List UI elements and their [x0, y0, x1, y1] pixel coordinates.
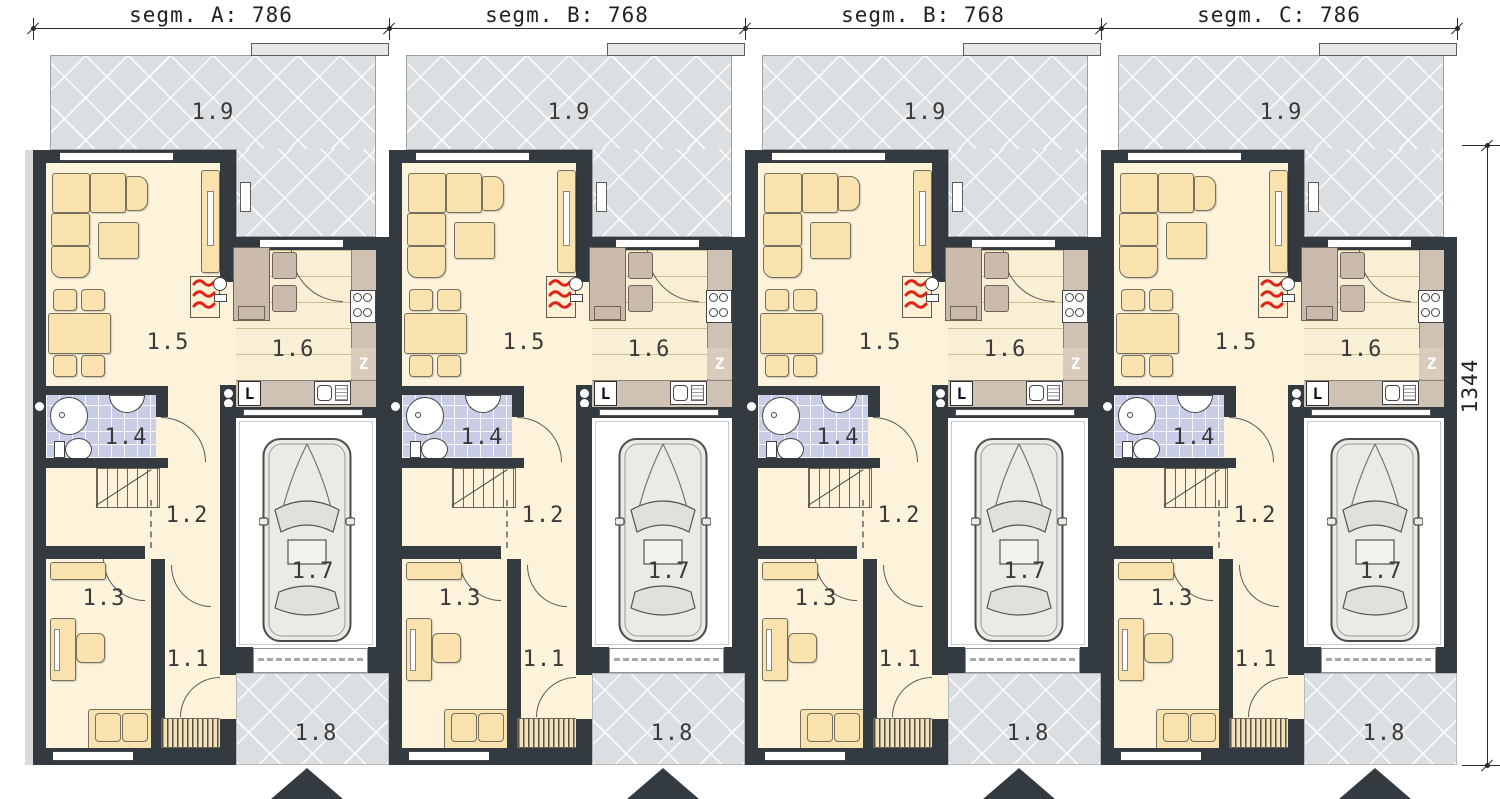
- office-label: 1.3: [789, 587, 843, 611]
- kitchen-chair: [984, 285, 1009, 312]
- shower: [762, 397, 800, 435]
- desk-chair: [432, 633, 461, 663]
- outer-wall-shadow: [25, 150, 33, 765]
- driveway: [236, 673, 389, 765]
- driveway-label: 1.8: [1001, 722, 1055, 746]
- burner-icon: [1421, 293, 1430, 302]
- right-dimension-label: 1344: [1458, 356, 1482, 416]
- burner-icon: [363, 293, 372, 302]
- garage-window: [1311, 409, 1431, 416]
- dining-chair: [793, 355, 817, 377]
- kitchen-chair: [1340, 285, 1365, 312]
- garage-label: 1.7: [642, 560, 696, 584]
- office-shelf: [762, 562, 818, 580]
- kitchen-sink: [1382, 381, 1419, 405]
- bathroom-right-wall: [156, 386, 168, 417]
- bathroom-right-wall: [868, 386, 880, 417]
- garage-door: [253, 648, 368, 673]
- wall-vent-dot: [747, 402, 756, 411]
- bathroom-bottom-wall: [750, 458, 880, 468]
- corner-sofa-chaise: [763, 246, 802, 278]
- driveway-label: 1.8: [645, 722, 699, 746]
- doormat: [1229, 718, 1289, 748]
- sink-bowl-icon: [1029, 385, 1044, 401]
- burner-icon: [709, 308, 718, 317]
- dining-chair: [53, 289, 77, 311]
- segment-4: 1.9 1.5: [1101, 0, 1457, 799]
- terrace-extension: [1304, 149, 1444, 237]
- wardrobe: [913, 170, 932, 273]
- burner-icon: [353, 308, 362, 317]
- sofa-cushion: [807, 713, 833, 742]
- kitchen-terrace-door-glass: [972, 239, 1055, 248]
- corner-sofa-cushion: [446, 173, 482, 213]
- kitchen-sink: [670, 381, 707, 405]
- dining-table: [404, 313, 467, 354]
- dining-chair: [53, 355, 77, 377]
- hall-dashed-line: [506, 500, 508, 548]
- office-window: [53, 751, 133, 761]
- desk-chair: [1144, 633, 1173, 663]
- desk-chair: [788, 633, 817, 663]
- desk-detail: [54, 629, 60, 671]
- desk-chair: [76, 633, 105, 663]
- desk-detail: [1122, 629, 1128, 671]
- party-wall: [1088, 237, 1101, 648]
- corner-sofa-chaise: [407, 246, 446, 278]
- hall-label: 1.2: [516, 504, 570, 528]
- driveway-label: 1.8: [289, 722, 343, 746]
- entry-label: 1.1: [873, 648, 927, 672]
- burner-icon: [1065, 308, 1074, 317]
- dining-chair: [765, 355, 789, 377]
- garage-door-right-pier: [368, 647, 389, 673]
- garage-door: [1321, 648, 1436, 673]
- hall-dashed-line: [1218, 500, 1220, 548]
- garage-door-left-pier: [576, 647, 609, 673]
- garage-label: 1.7: [998, 560, 1052, 584]
- burner-icon: [1075, 293, 1084, 302]
- flue-circle: [925, 277, 939, 291]
- office-shelf: [50, 562, 106, 580]
- sink-drainer-icon: [1403, 385, 1416, 401]
- garage-window: [243, 409, 363, 416]
- living-room-label: 1.5: [853, 331, 907, 355]
- corner-sofa-chaise: [51, 246, 90, 278]
- burner-icon: [709, 293, 718, 302]
- shower: [1118, 397, 1156, 435]
- sofa-cushion: [478, 713, 504, 742]
- doormat: [517, 718, 577, 748]
- fridge-label: L: [1306, 381, 1329, 406]
- burner-icon: [1421, 308, 1430, 317]
- desk: [50, 618, 76, 681]
- driveway-label: 1.8: [1357, 722, 1411, 746]
- bathroom-bottom-wall: [1106, 458, 1236, 468]
- terrace-top-wall: [607, 43, 745, 56]
- segment-1: 1.9 1.5: [33, 0, 389, 799]
- terrace-extension: [948, 149, 1088, 237]
- stove: [1418, 290, 1444, 323]
- garage-door-right-pier: [1080, 647, 1101, 673]
- desk: [1118, 618, 1144, 681]
- garage-door-left-pier: [1288, 647, 1321, 673]
- driveway: [592, 673, 745, 765]
- dishwasher-label: Z: [707, 348, 732, 379]
- dining-chair: [81, 289, 105, 311]
- garage-door-right-pier: [724, 647, 745, 673]
- segment-2: 1.9 1.5: [389, 0, 745, 799]
- corner-sofa-arm: [1194, 176, 1216, 211]
- toilet-tank: [410, 441, 421, 458]
- office-sofa: [444, 709, 512, 751]
- shower-drain-icon: [59, 412, 65, 418]
- burner-icon: [1431, 293, 1440, 302]
- segment-3: 1.9 1.5: [745, 0, 1101, 799]
- dishwasher-label: Z: [1063, 348, 1088, 379]
- stove: [706, 290, 732, 323]
- toilet-tank: [766, 441, 777, 458]
- kitchen-label: 1.6: [266, 338, 320, 362]
- office-label: 1.3: [433, 587, 487, 611]
- wall-vent-dot: [391, 402, 400, 411]
- entrance-arrow-icon: [1339, 768, 1411, 799]
- shower: [406, 397, 444, 435]
- terrace-label: 1.9: [539, 101, 599, 125]
- corner-sofa-cushion: [407, 213, 446, 246]
- party-wall: [1444, 237, 1457, 648]
- terrace-top-wall: [1319, 43, 1457, 56]
- wall-vent-dot: [35, 402, 44, 411]
- garage-door-dashed-line: [1326, 658, 1431, 661]
- car-top-view: [971, 436, 1067, 644]
- entry-label: 1.1: [1229, 648, 1283, 672]
- corner-sofa-cushion: [51, 213, 90, 246]
- corner-sofa-cushion: [52, 173, 90, 213]
- burner-icon: [353, 293, 362, 302]
- flue-circle: [1281, 277, 1295, 291]
- flue-box: [926, 294, 939, 302]
- sink-drainer-icon: [1047, 385, 1060, 401]
- wardrobe: [1269, 170, 1288, 273]
- sink-drainer-icon: [335, 385, 348, 401]
- fridge-label: L: [238, 381, 261, 406]
- hall-label: 1.2: [160, 504, 214, 528]
- dining-chair: [409, 289, 433, 311]
- garage-door: [965, 648, 1080, 673]
- coffee-table: [98, 222, 139, 259]
- desk: [762, 618, 788, 681]
- corner-sofa-cushion: [763, 213, 802, 246]
- coffee-table: [1166, 222, 1207, 259]
- wall-vent-dot: [580, 389, 589, 398]
- burner-icon: [1431, 308, 1440, 317]
- living-room-label: 1.5: [497, 331, 551, 355]
- hall-dashed-line: [862, 500, 864, 548]
- bathroom-right-wall: [512, 386, 524, 417]
- corner-sofa-chaise: [1119, 246, 1158, 278]
- right-dimension-line: [1487, 145, 1488, 766]
- dining-chair: [409, 355, 433, 377]
- living-room-window: [772, 152, 885, 161]
- kitchen-chair: [628, 252, 653, 279]
- bathroom-bottom-wall: [394, 458, 524, 468]
- garage-door: [609, 648, 724, 673]
- sofa-cushion: [834, 713, 860, 742]
- desk-detail: [410, 629, 416, 671]
- office-top-wall: [758, 546, 857, 559]
- dining-chair: [1121, 355, 1145, 377]
- terrace-label: 1.9: [895, 101, 955, 125]
- dining-chair: [1149, 289, 1173, 311]
- garage-door-dashed-line: [970, 658, 1075, 661]
- dishwasher-label: Z: [1419, 348, 1444, 379]
- party-wall: [376, 237, 389, 648]
- shower-drain-icon: [771, 412, 777, 418]
- sofa-cushion: [95, 713, 121, 742]
- coffee-table: [454, 222, 495, 259]
- toilet-tank: [1122, 441, 1133, 458]
- wall-vent-dot: [1103, 402, 1112, 411]
- dining-chair: [437, 289, 461, 311]
- kitchen-chair: [628, 285, 653, 312]
- kitchen-chair: [984, 252, 1009, 279]
- terrace-window: [1308, 182, 1319, 212]
- dining-chair: [81, 355, 105, 377]
- desk-detail: [766, 629, 772, 671]
- shower-drain-icon: [1127, 412, 1133, 418]
- living-room-label: 1.5: [1209, 331, 1263, 355]
- car-top-view: [615, 436, 711, 644]
- garage-window: [599, 409, 719, 416]
- doormat: [873, 718, 933, 748]
- garage-door-dashed-line: [258, 658, 363, 661]
- entrance-arrow-icon: [983, 768, 1055, 799]
- corner-sofa-cushion: [764, 173, 802, 213]
- bathroom-label: 1.4: [811, 426, 865, 450]
- dining-table: [1116, 313, 1179, 354]
- hall-label: 1.2: [1228, 504, 1282, 528]
- garage-door-right-pier: [1436, 647, 1457, 673]
- office-sofa: [88, 709, 156, 751]
- sink-drainer-icon: [691, 385, 704, 401]
- kitchen-stool: [594, 306, 621, 320]
- dining-table: [760, 313, 823, 354]
- flue-circle: [569, 277, 583, 291]
- flue-box: [214, 294, 227, 302]
- office-top-wall: [46, 546, 145, 559]
- corner-sofa-arm: [482, 176, 504, 211]
- terrace-top-wall: [251, 43, 389, 56]
- burner-icon: [719, 308, 728, 317]
- sink-bowl-icon: [1385, 385, 1400, 401]
- kitchen-terrace-door-glass: [1328, 239, 1411, 248]
- car-top-view: [1327, 436, 1423, 644]
- bathroom-right-wall: [1224, 386, 1236, 417]
- corner-sofa-arm: [126, 176, 148, 211]
- corner-sofa-cushion: [408, 173, 446, 213]
- right-dimension-extension-top: [1462, 145, 1500, 146]
- wardrobe-door-detail: [1275, 191, 1282, 246]
- bathroom-label: 1.4: [455, 426, 509, 450]
- kitchen-terrace-door-glass: [616, 239, 699, 248]
- living-room-window: [60, 152, 173, 161]
- front-door-opening: [576, 675, 592, 719]
- dining-chair: [1121, 289, 1145, 311]
- terrace-window: [952, 182, 963, 212]
- corner-sofa-arm: [838, 176, 860, 211]
- right-dimension-extension-bottom: [1462, 765, 1500, 766]
- office-window: [1121, 751, 1201, 761]
- kitchen-chair: [272, 285, 297, 312]
- dining-chair: [793, 289, 817, 311]
- kitchen-chair: [272, 252, 297, 279]
- sink-bowl-icon: [317, 385, 332, 401]
- garage-door-left-pier: [932, 647, 965, 673]
- driveway: [948, 673, 1101, 765]
- garage-door-left-pier: [220, 647, 253, 673]
- kitchen-label: 1.6: [978, 338, 1032, 362]
- sofa-cushion: [1163, 713, 1189, 742]
- office-label: 1.3: [77, 587, 131, 611]
- hall-label: 1.2: [872, 504, 926, 528]
- stove: [350, 290, 376, 323]
- corner-sofa-cushion: [1158, 173, 1194, 213]
- kitchen-label: 1.6: [622, 338, 676, 362]
- toilet-tank: [54, 441, 65, 458]
- burner-icon: [719, 293, 728, 302]
- dining-chair: [765, 289, 789, 311]
- burner-icon: [1065, 293, 1074, 302]
- wall-vent-dot: [936, 389, 945, 398]
- office-window: [765, 751, 845, 761]
- hall-dashed-line: [150, 500, 152, 548]
- office-top-wall: [402, 546, 501, 559]
- living-room-window: [1128, 152, 1241, 161]
- terrace-label: 1.9: [183, 101, 243, 125]
- kitchen-stool: [950, 306, 977, 320]
- entry-label: 1.1: [161, 648, 215, 672]
- floor-plan: segm. A: 786 segm. B: 768 segm. B: 768 s…: [0, 0, 1500, 799]
- office-sofa: [1156, 709, 1224, 751]
- entry-label: 1.1: [517, 648, 571, 672]
- garage-window: [955, 409, 1075, 416]
- living-room-window: [416, 152, 529, 161]
- desk: [406, 618, 432, 681]
- fridge-label: L: [594, 381, 617, 406]
- wardrobe-door-detail: [919, 191, 926, 246]
- kitchen-sink: [1026, 381, 1063, 405]
- entrance-arrow-icon: [271, 768, 343, 799]
- office-window: [409, 751, 489, 761]
- wall-vent-dot: [1292, 389, 1301, 398]
- fridge-label: L: [950, 381, 973, 406]
- sofa-cushion: [122, 713, 148, 742]
- corner-sofa-cushion: [802, 173, 838, 213]
- terrace-label: 1.9: [1251, 101, 1311, 125]
- terrace-window: [596, 182, 607, 212]
- corner-sofa-cushion: [1119, 213, 1158, 246]
- shower-drain-icon: [415, 412, 421, 418]
- coffee-table: [810, 222, 851, 259]
- terrace-extension: [592, 149, 732, 237]
- terrace-top-wall: [963, 43, 1101, 56]
- car-top-view: [259, 436, 355, 644]
- garage-door-dashed-line: [614, 658, 719, 661]
- entrance-arrow-icon: [627, 768, 699, 799]
- front-door-opening: [1288, 675, 1304, 719]
- sofa-cushion: [1190, 713, 1216, 742]
- kitchen-stool: [238, 306, 265, 320]
- dishwasher-label: Z: [351, 348, 376, 379]
- shower: [50, 397, 88, 435]
- wardrobe: [557, 170, 576, 273]
- wardrobe-door-detail: [207, 191, 214, 246]
- dimension-dot: [1485, 143, 1490, 148]
- flue-circle: [213, 277, 227, 291]
- bathroom-bottom-wall: [38, 458, 168, 468]
- front-door-opening: [932, 675, 948, 719]
- garage-label: 1.7: [1354, 560, 1408, 584]
- wall-vent-dot: [224, 389, 233, 398]
- corner-sofa-cushion: [90, 173, 126, 213]
- dining-chair: [437, 355, 461, 377]
- garage-label: 1.7: [286, 560, 340, 584]
- doormat: [161, 718, 221, 748]
- wardrobe-door-detail: [563, 191, 570, 246]
- kitchen-stool: [1306, 306, 1333, 320]
- kitchen-chair: [1340, 252, 1365, 279]
- office-top-wall: [1114, 546, 1213, 559]
- dining-chair: [1149, 355, 1173, 377]
- driveway: [1304, 673, 1457, 765]
- flue-box: [1282, 294, 1295, 302]
- kitchen-terrace-door-glass: [260, 239, 343, 248]
- dining-table: [48, 313, 111, 354]
- sink-bowl-icon: [673, 385, 688, 401]
- flue-box: [570, 294, 583, 302]
- terrace-window: [240, 182, 251, 212]
- dimension-dot: [1485, 763, 1490, 768]
- stove: [1062, 290, 1088, 323]
- office-label: 1.3: [1145, 587, 1199, 611]
- burner-icon: [363, 308, 372, 317]
- party-wall: [732, 237, 745, 648]
- terrace-extension: [236, 149, 376, 237]
- office-shelf: [1118, 562, 1174, 580]
- office-shelf: [406, 562, 462, 580]
- front-door-opening: [220, 675, 236, 719]
- bathroom-label: 1.4: [99, 426, 153, 450]
- burner-icon: [1075, 308, 1084, 317]
- sofa-cushion: [451, 713, 477, 742]
- kitchen-sink: [314, 381, 351, 405]
- corner-sofa-cushion: [1120, 173, 1158, 213]
- living-room-label: 1.5: [141, 331, 195, 355]
- bathroom-label: 1.4: [1167, 426, 1221, 450]
- office-sofa: [800, 709, 868, 751]
- kitchen-label: 1.6: [1334, 338, 1388, 362]
- wardrobe: [201, 170, 220, 273]
